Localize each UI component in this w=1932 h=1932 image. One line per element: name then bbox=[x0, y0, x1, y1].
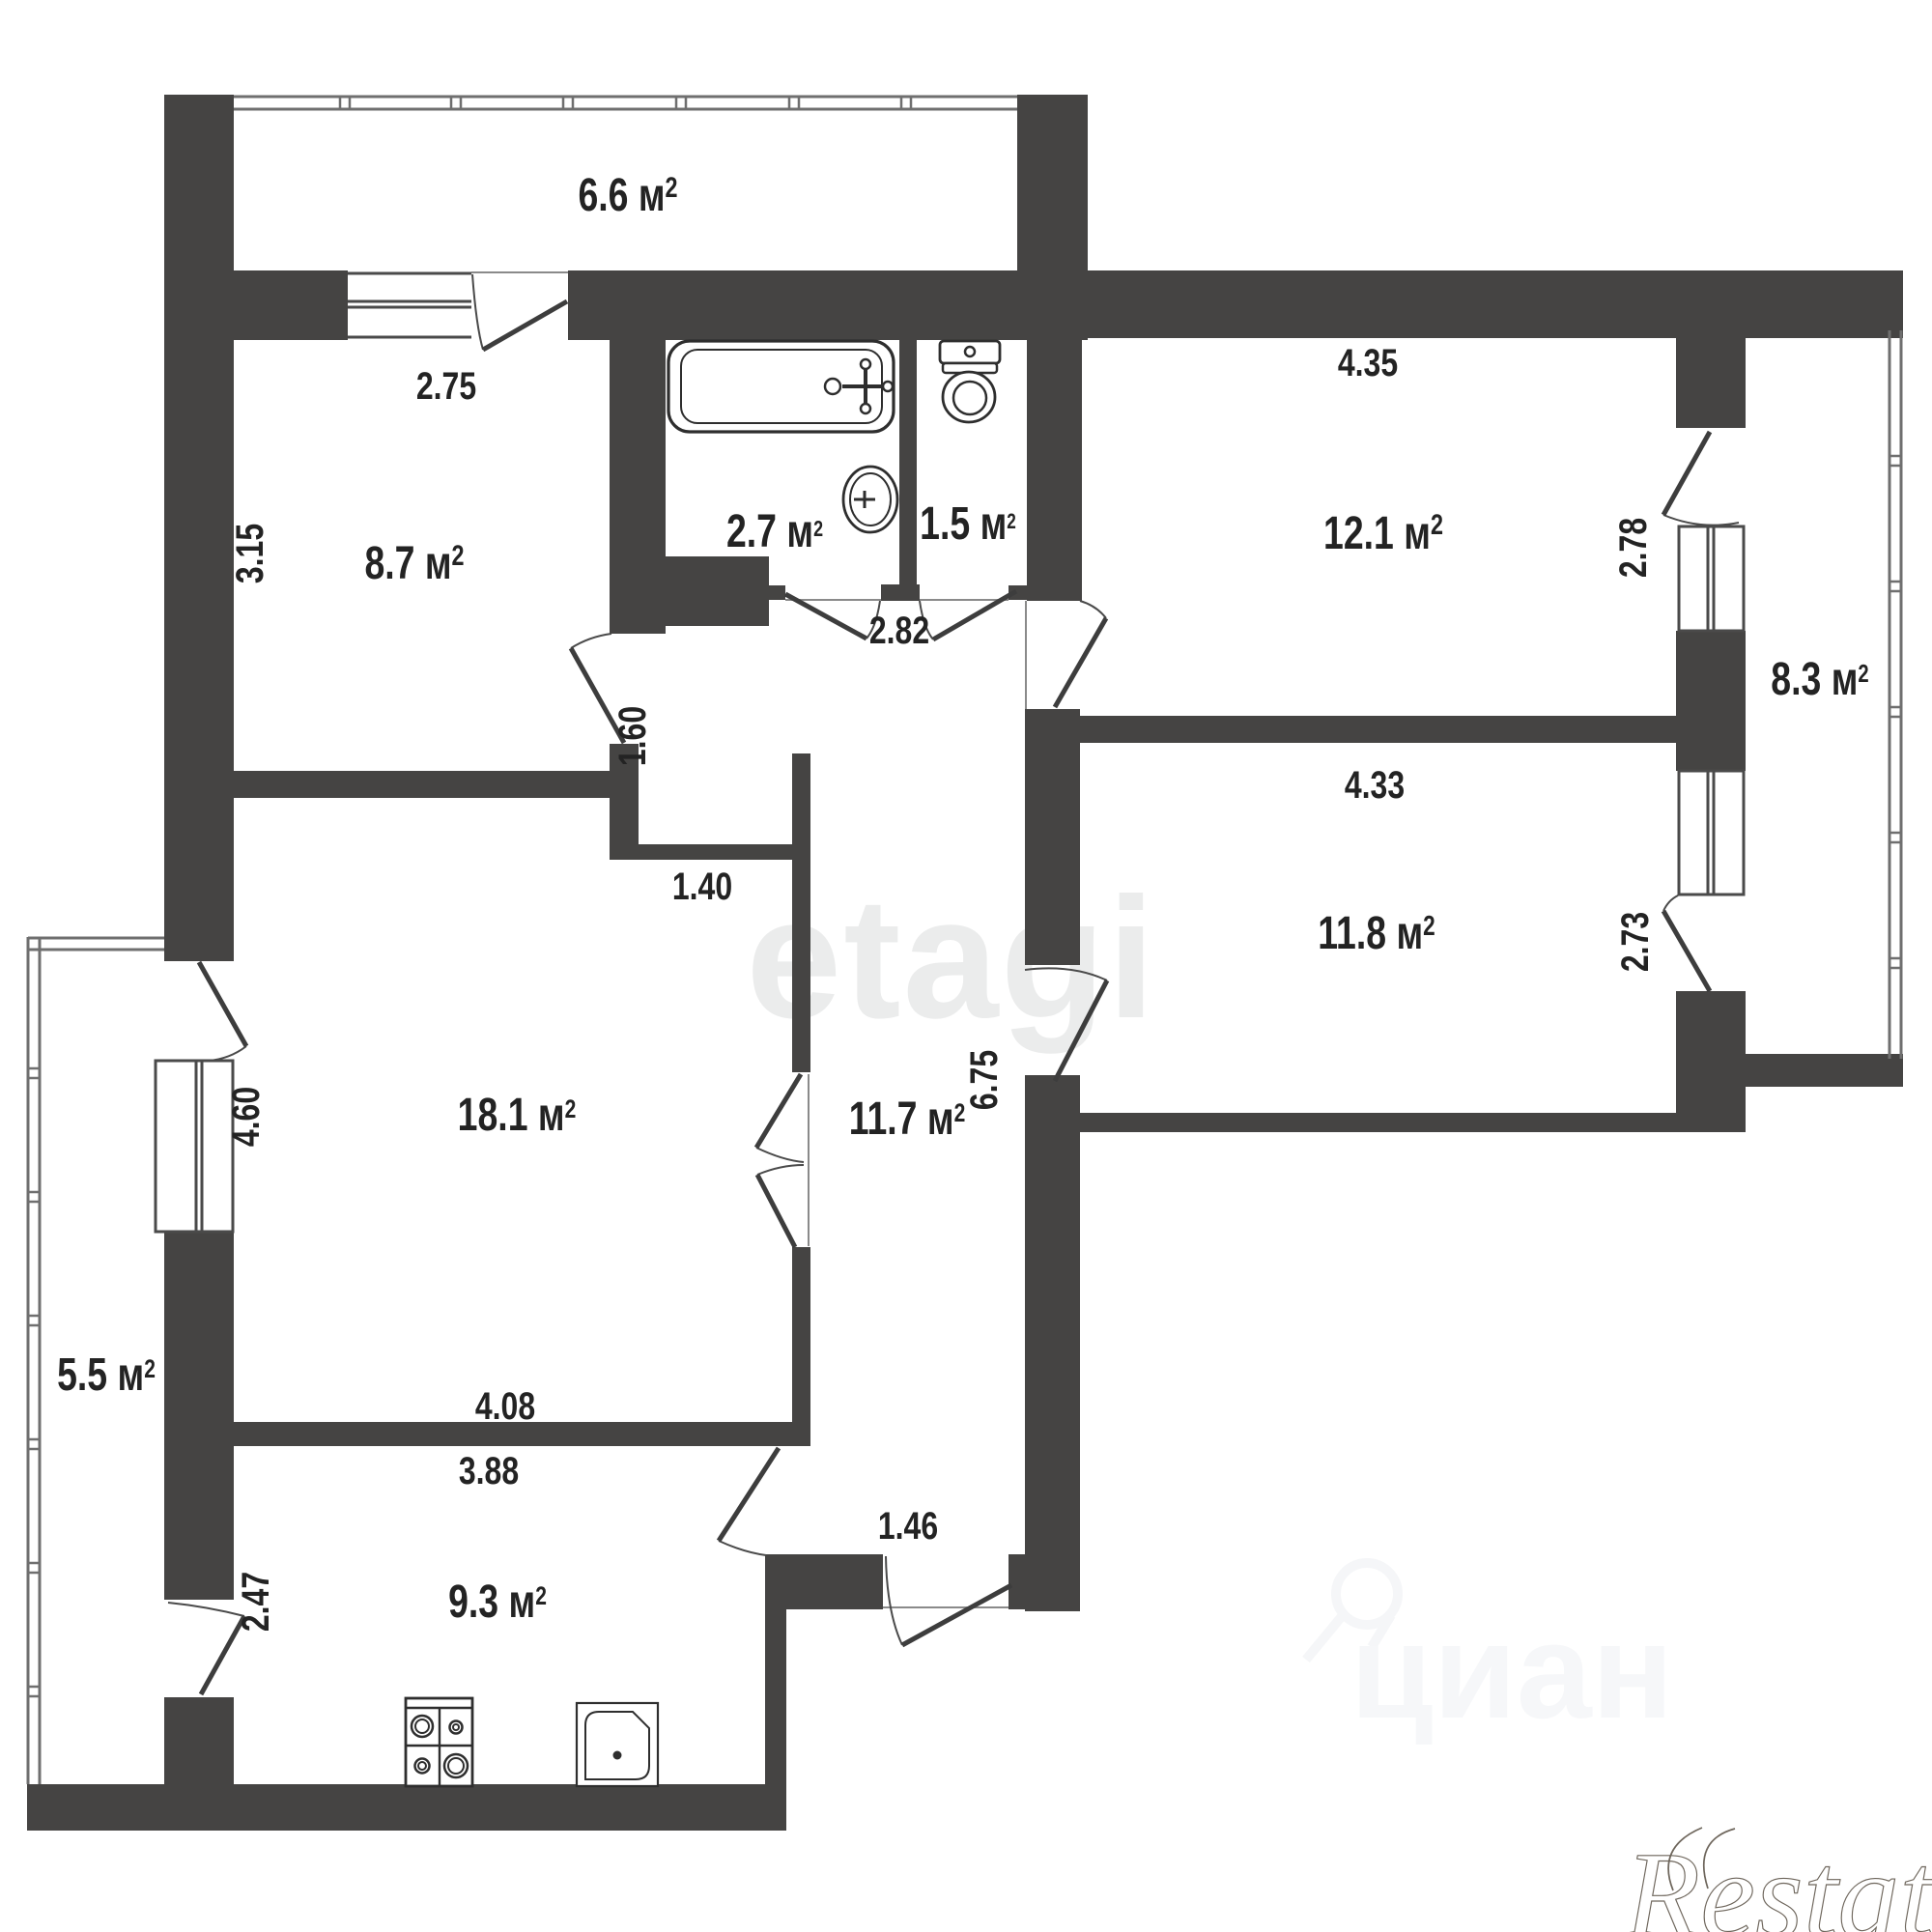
svg-text:4.08: 4.08 bbox=[475, 1384, 535, 1428]
svg-text:3.15: 3.15 bbox=[228, 524, 271, 583]
svg-text:11.8 м2: 11.8 м2 bbox=[1318, 908, 1435, 960]
svg-text:18.1 м2: 18.1 м2 bbox=[458, 1090, 577, 1142]
svg-text:2.75: 2.75 bbox=[416, 364, 476, 408]
svg-text:12.1 м2: 12.1 м2 bbox=[1323, 508, 1443, 560]
svg-text:3.88: 3.88 bbox=[459, 1449, 519, 1492]
svg-text:2.7 м2: 2.7 м2 bbox=[726, 506, 823, 558]
svg-text:1.40: 1.40 bbox=[672, 865, 732, 908]
svg-text:4.33: 4.33 bbox=[1345, 763, 1405, 807]
svg-text:циан: циан bbox=[1350, 1595, 1674, 1747]
svg-text:8.3 м2: 8.3 м2 bbox=[1771, 654, 1868, 706]
svg-text:6.75: 6.75 bbox=[962, 1050, 1006, 1110]
svg-text:1.46: 1.46 bbox=[878, 1504, 938, 1548]
svg-text:8.7 м2: 8.7 м2 bbox=[364, 538, 464, 590]
svg-text:2.47: 2.47 bbox=[234, 1572, 277, 1632]
svg-text:9.3 м2: 9.3 м2 bbox=[448, 1577, 547, 1629]
svg-text:1.60: 1.60 bbox=[611, 706, 654, 766]
svg-text:2.82: 2.82 bbox=[869, 609, 929, 652]
svg-text:1.5 м2: 1.5 м2 bbox=[920, 498, 1016, 551]
svg-text:4.35: 4.35 bbox=[1338, 341, 1398, 384]
svg-text:5.5 м2: 5.5 м2 bbox=[57, 1350, 156, 1402]
svg-text:11.7 м2: 11.7 м2 bbox=[849, 1094, 966, 1146]
svg-text:6.6 м2: 6.6 м2 bbox=[578, 170, 677, 222]
svg-text:4.60: 4.60 bbox=[224, 1087, 268, 1147]
svg-text:2.78: 2.78 bbox=[1611, 518, 1655, 578]
svg-text:2.73: 2.73 bbox=[1613, 912, 1657, 972]
